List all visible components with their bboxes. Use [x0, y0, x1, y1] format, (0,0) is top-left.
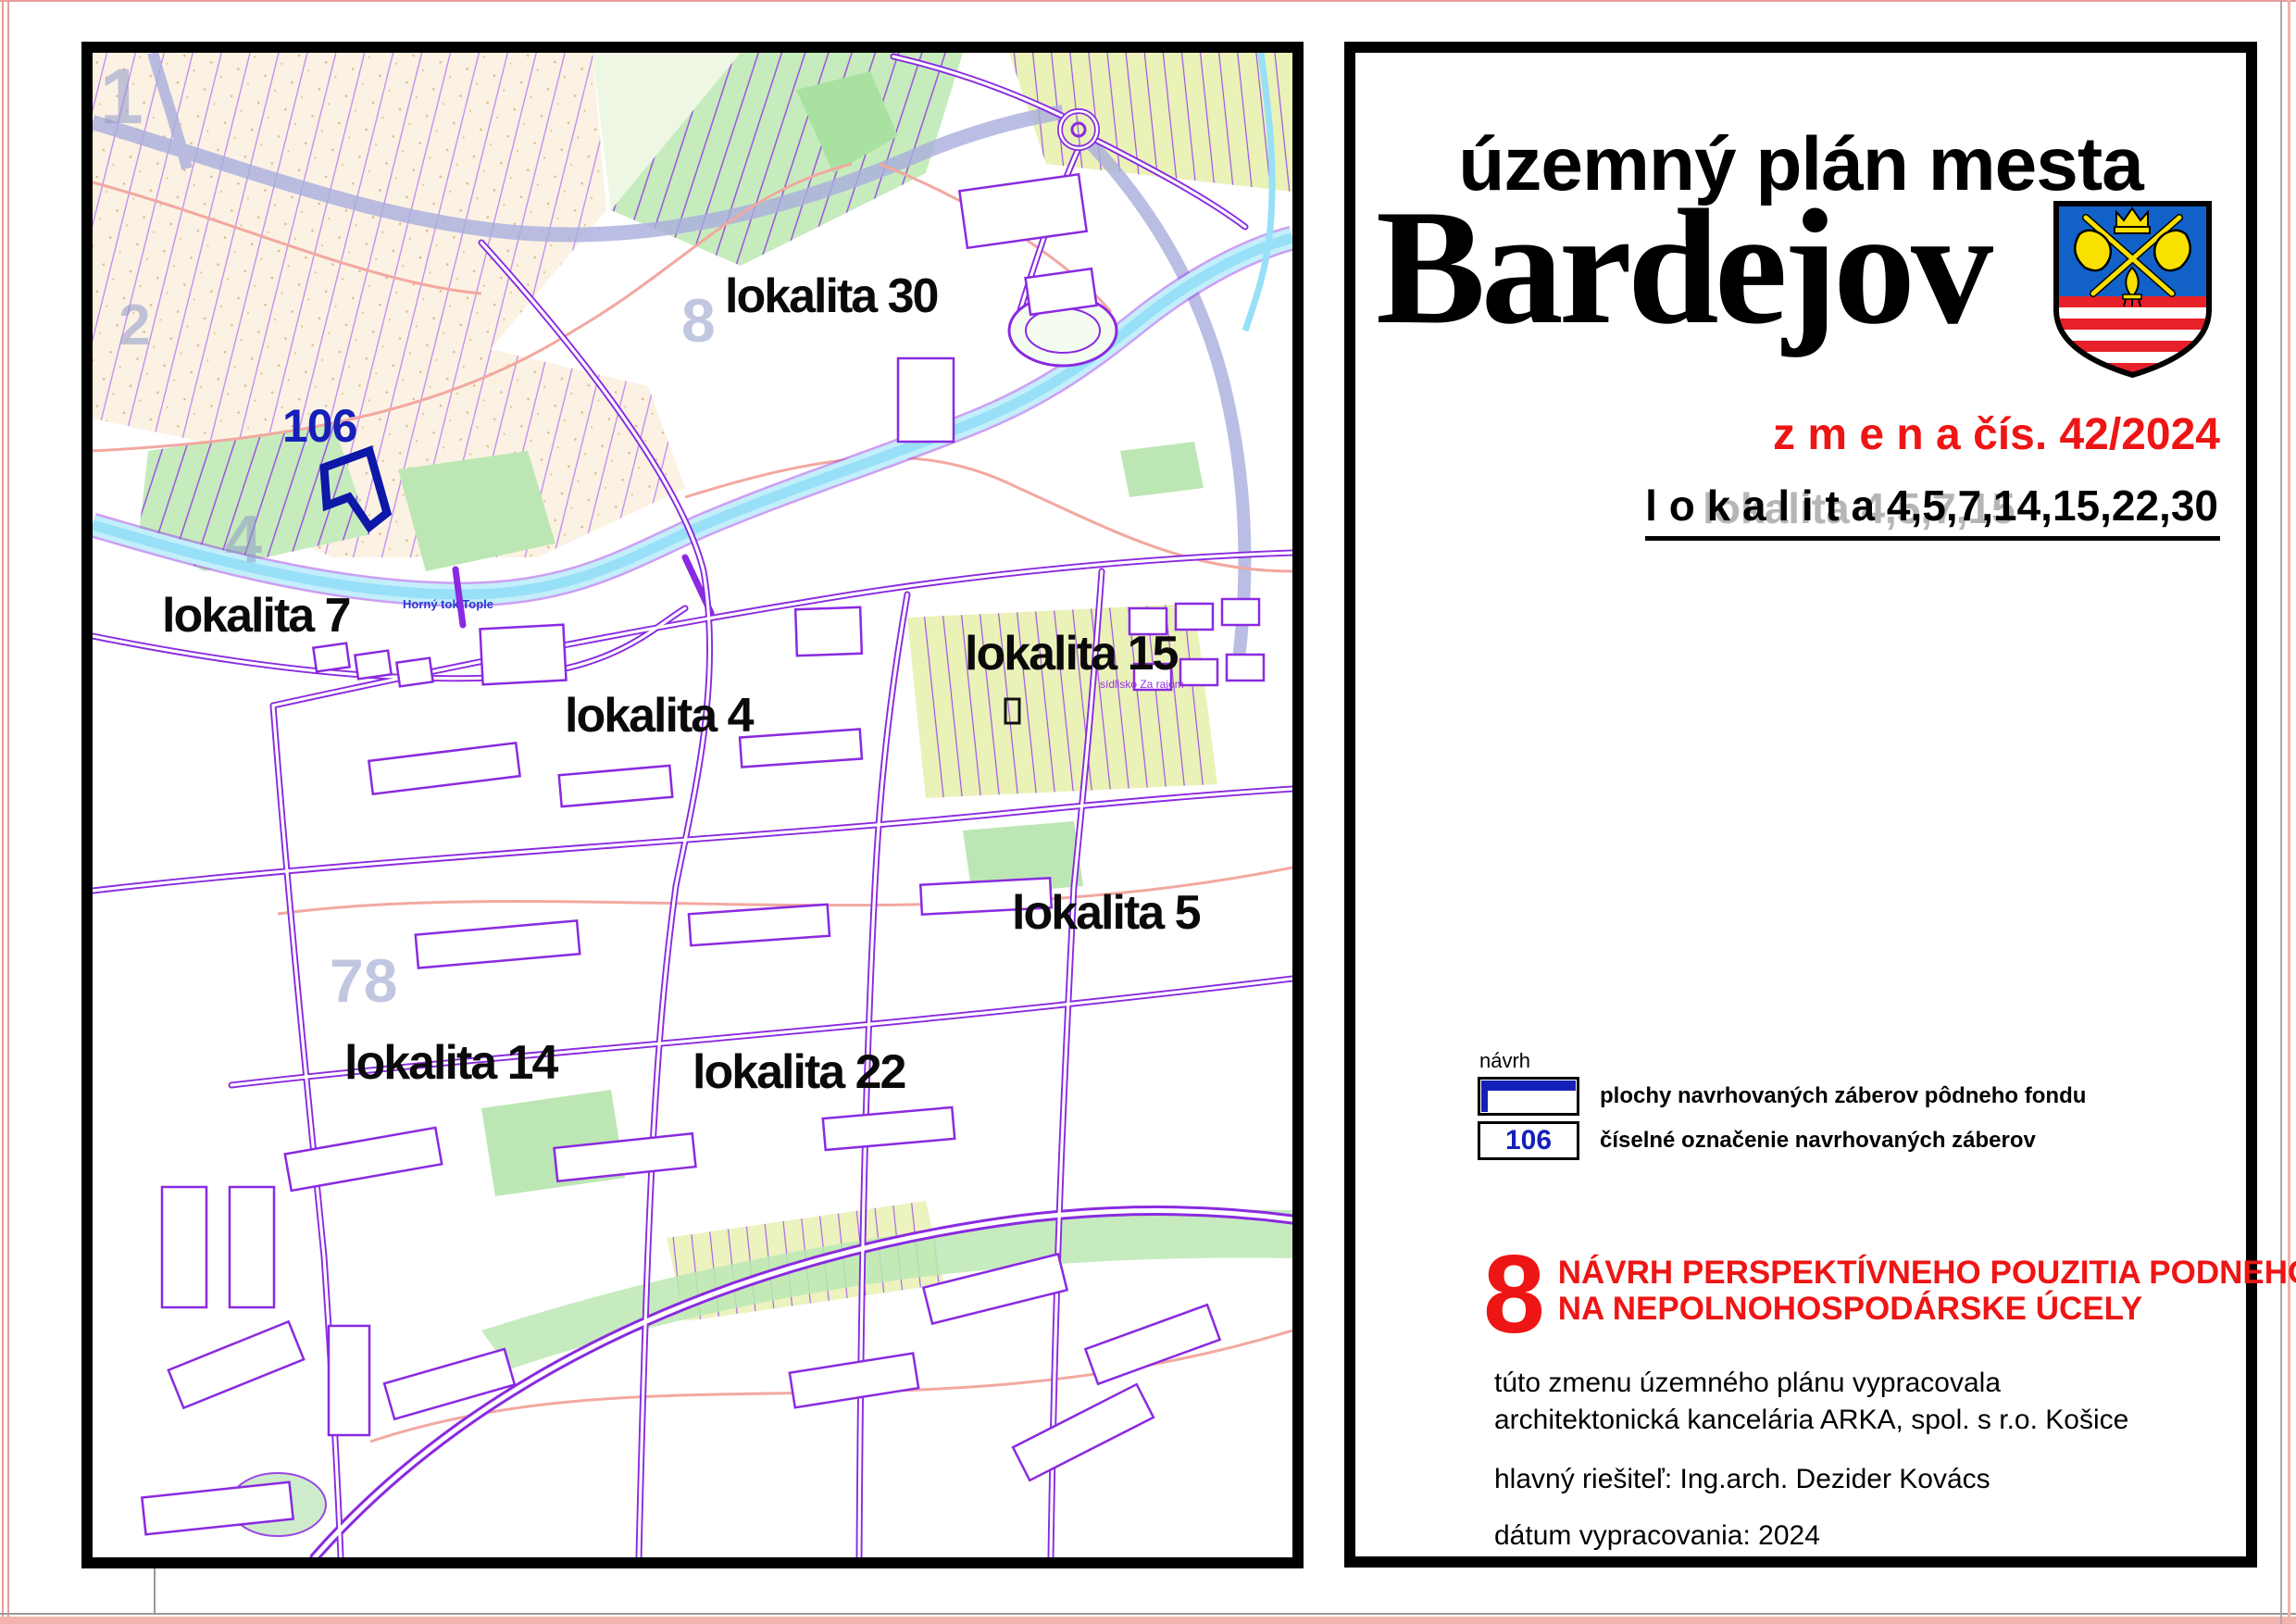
- label-lokalita-4: lokalita 4: [565, 689, 755, 743]
- scan-edge-bottom-pink: [0, 1617, 2296, 1624]
- scanned-plan-page: { "title_block": { "subtitle": "územný p…: [0, 0, 2296, 1624]
- label-lokalita-15: lokalita 15: [965, 627, 1179, 681]
- scan-edge-right-pink: [2288, 0, 2290, 1624]
- sheet-title-line2: NA NEPOLNOHOSPODÁRSKE ÚCELY: [1558, 1291, 2142, 1327]
- sheet-number-8: 8: [681, 286, 716, 355]
- number-swatch-icon: 106: [1478, 1121, 1579, 1160]
- legend-row-number: 106 číselné označenie navrhovaných záber…: [1478, 1121, 2086, 1160]
- legend-number: 106: [1480, 1124, 1577, 1157]
- map-panel: 1 2 8 78 4 lokalita 30 lokalita 7 lokali…: [81, 42, 1304, 1568]
- cadastral-map: 1 2 8 78 4 lokalita 30 lokalita 7 lokali…: [93, 53, 1292, 1557]
- scan-edge-bottom-grey: [0, 1613, 2296, 1615]
- city-name: Bardejov: [1376, 184, 1989, 349]
- change-number-line: z m e n a čís. 42/2024: [1773, 409, 2220, 460]
- label-lokalita-14: lokalita 14: [344, 1036, 559, 1090]
- label-lokalita-22: lokalita 22: [693, 1045, 905, 1099]
- bardejov-coat-of-arms: [2052, 199, 2214, 380]
- localities-line: lokalita 4,5,7,15 l o k a l i t a 4,5,7,…: [1645, 481, 2220, 541]
- credit-line-1: túto zmenu územného plánu vypracovala: [1494, 1368, 2001, 1399]
- sheet-number-78: 78: [330, 946, 397, 1015]
- fold-mark: [154, 1568, 156, 1613]
- scan-edge-left-inner: [7, 0, 9, 1624]
- district-name-label: sídlisko Za rajom: [1100, 678, 1184, 691]
- river-name-label: Horný tok Tople: [403, 597, 493, 611]
- sheet-number-4: 4: [225, 503, 262, 577]
- title-block-panel: územný plán mesta Bardejov: [1344, 42, 2257, 1568]
- scan-edge-left-outer: [2, 0, 4, 1624]
- credit-line-3: hlavný riešiteľ: Ing.arch. Dezider Kovác…: [1494, 1464, 1990, 1495]
- legend-row-areas: plochy navrhovaných záberov pôdneho fond…: [1478, 1077, 2086, 1116]
- legend-label-areas: plochy navrhovaných záberov pôdneho fond…: [1600, 1083, 2086, 1109]
- credit-line-4: dátum vypracovania: 2024: [1494, 1520, 1820, 1552]
- label-area-106: 106: [282, 400, 356, 452]
- sheet-heading: 8 NÁVRH PERSPEKTÍVNEHO POUZITIA PODNEHO …: [1483, 1249, 2224, 1340]
- label-lokalita-30: lokalita 30: [725, 269, 938, 323]
- label-lokalita-7: lokalita 7: [162, 589, 350, 643]
- sheet-number-1: 1: [100, 53, 143, 140]
- label-lokalita-5: lokalita 5: [1012, 886, 1201, 940]
- area-swatch-icon: [1478, 1077, 1579, 1116]
- legend-label-number: číselné označenie navrhovaných záberov: [1600, 1128, 2036, 1154]
- sheet-number-2: 2: [119, 294, 150, 357]
- sheet-title-line1: NÁVRH PERSPEKTÍVNEHO POUZITIA PODNEHO FO…: [1558, 1255, 2296, 1291]
- credit-line-2: architektonická kancelária ARKA, spol. s…: [1494, 1405, 2128, 1436]
- legend-heading: návrh: [1479, 1049, 2086, 1073]
- legend: návrh plochy navrhovaných záberov pôdneh…: [1478, 1049, 2086, 1166]
- localities-text: l o k a l i t a 4,5,7,14,15,22,30: [1645, 481, 2218, 530]
- sheet-number: 8: [1483, 1249, 1545, 1340]
- scan-edge-right-grey: [2280, 0, 2282, 1624]
- scan-edge-top: [0, 0, 2296, 2]
